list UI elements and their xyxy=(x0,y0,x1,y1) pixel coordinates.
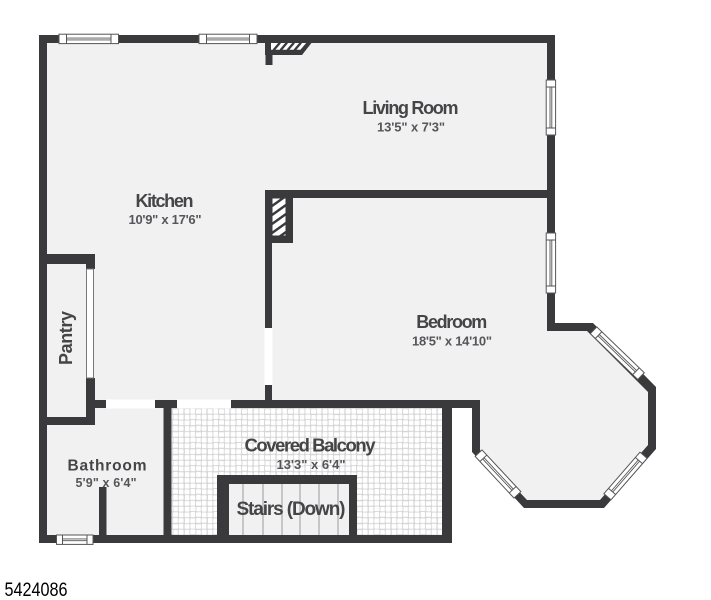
svg-text:5'9" x 6'4": 5'9" x 6'4" xyxy=(76,476,137,490)
svg-text:5424086: 5424086 xyxy=(5,580,68,600)
svg-text:Kitchen: Kitchen xyxy=(136,191,194,211)
svg-text:10'9" x 17'6": 10'9" x 17'6" xyxy=(129,212,202,227)
svg-text:13'5" x 7'3": 13'5" x 7'3" xyxy=(377,120,445,135)
svg-text:Bathroom: Bathroom xyxy=(68,458,147,475)
svg-text:Stairs (Down): Stairs (Down) xyxy=(237,499,346,520)
svg-text:Covered Balcony: Covered Balcony xyxy=(245,435,377,456)
svg-text:18'5" x 14'10": 18'5" x 14'10" xyxy=(412,334,492,349)
svg-text:Bedroom: Bedroom xyxy=(416,312,487,332)
svg-text:Pantry: Pantry xyxy=(56,311,76,365)
svg-text:Living Room: Living Room xyxy=(363,98,459,118)
svg-text:13'3" x 6'4": 13'3" x 6'4" xyxy=(277,457,346,472)
